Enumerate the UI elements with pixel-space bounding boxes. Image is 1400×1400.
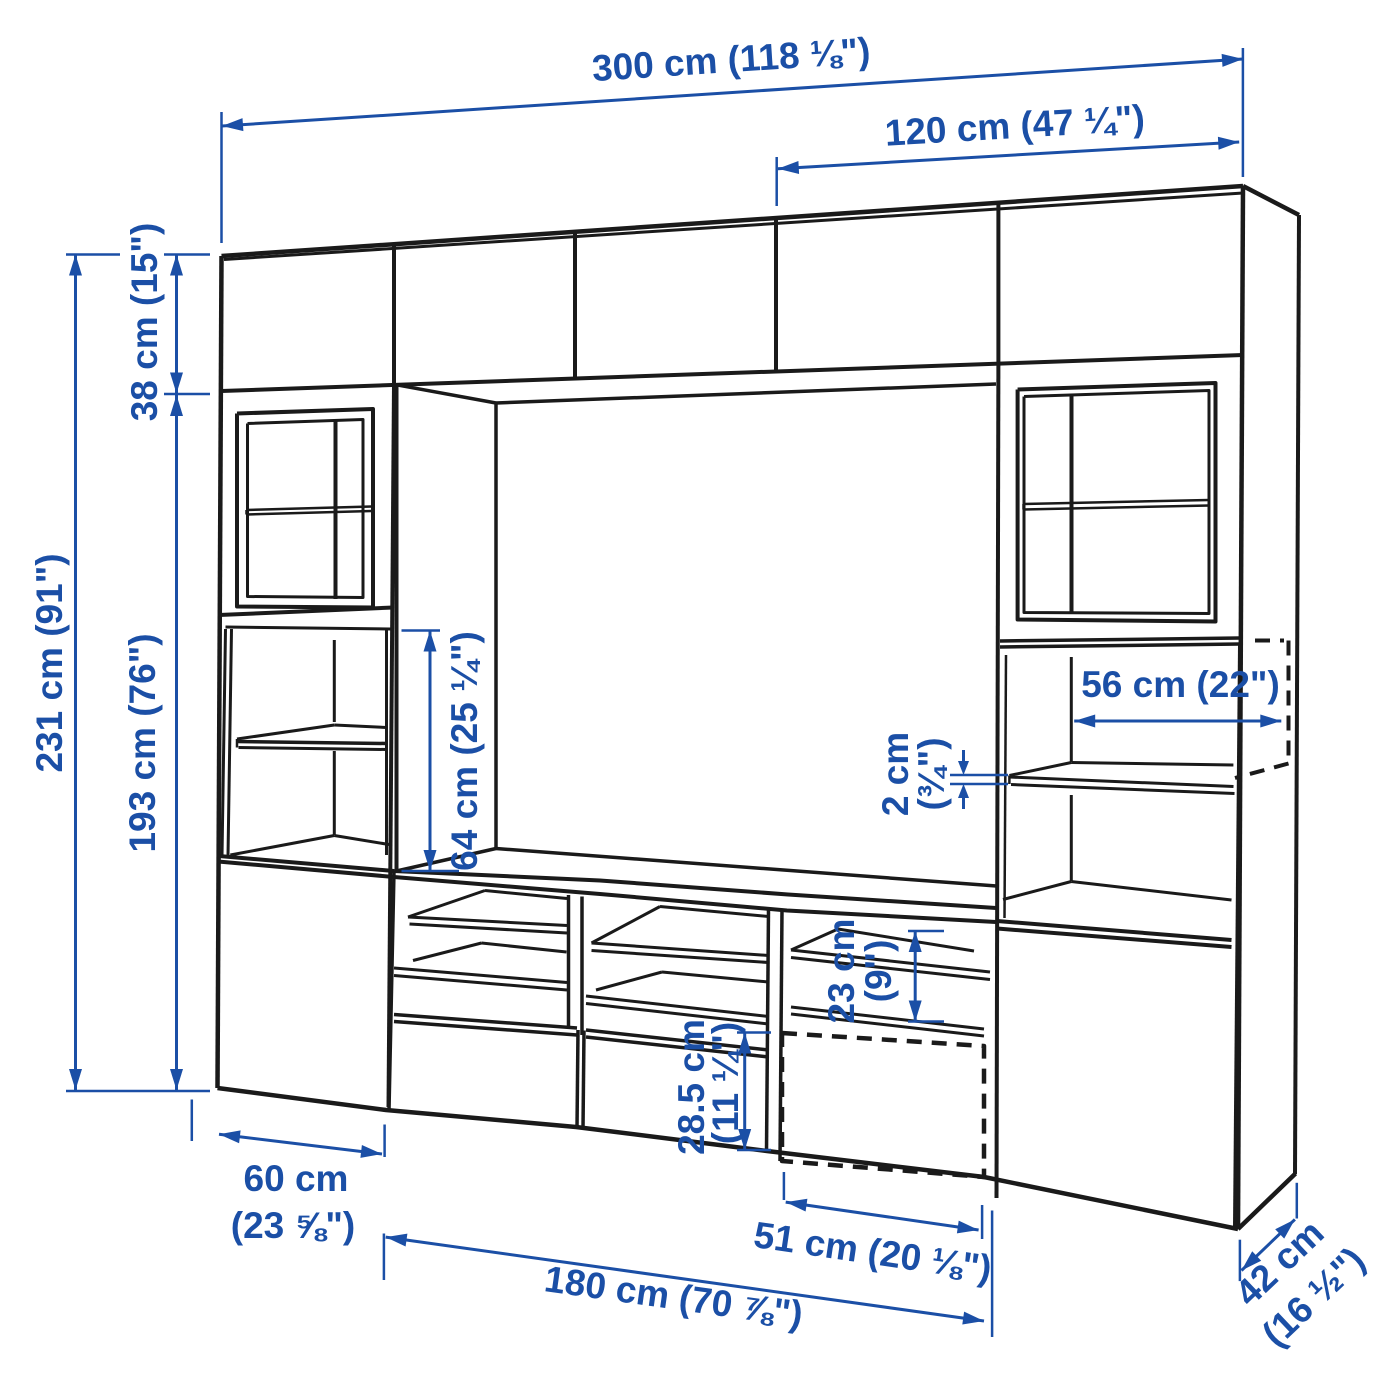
svg-text:(9"): (9") (858, 940, 899, 1003)
svg-text:23 cm: 23 cm (821, 919, 862, 1024)
svg-text:60 cm: 60 cm (244, 1158, 349, 1199)
svg-text:193 cm (76"): 193 cm (76") (122, 633, 163, 852)
svg-text:231 cm (91"): 231 cm (91") (29, 553, 70, 772)
svg-text:38 cm (15"): 38 cm (15") (124, 223, 165, 422)
svg-text:64 cm (25 ¼"): 64 cm (25 ¼") (444, 631, 485, 871)
svg-text:2 cm: 2 cm (875, 732, 916, 816)
svg-text:(¾"): (¾") (911, 737, 952, 810)
svg-text:(11 ¼"): (11 ¼") (705, 1022, 746, 1144)
svg-text:56 cm (22"): 56 cm (22") (1081, 664, 1280, 705)
svg-text:(23 ⅝"): (23 ⅝") (231, 1205, 355, 1246)
